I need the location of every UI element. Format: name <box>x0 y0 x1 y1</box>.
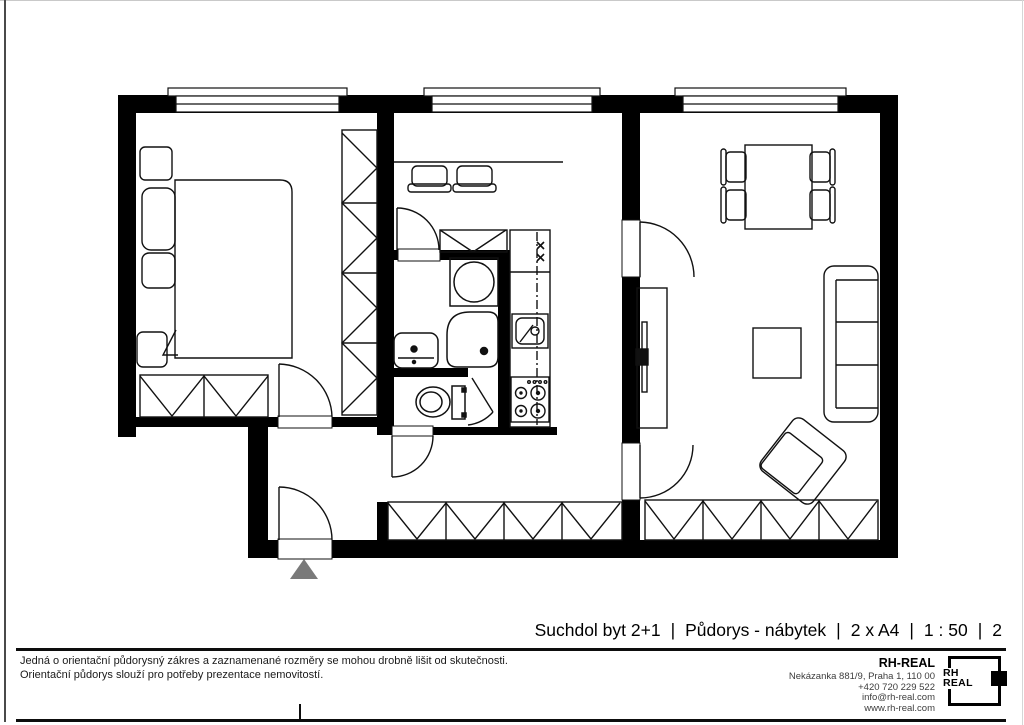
dining-table-symbol <box>745 145 812 229</box>
toilet-symbol <box>416 386 466 419</box>
kitchen-sink-symbol <box>512 314 548 348</box>
walls <box>118 95 898 558</box>
chair-symbol <box>721 187 746 223</box>
company-name: RH-REAL <box>789 656 935 670</box>
chair-symbol <box>721 149 746 185</box>
floorplan-drawing <box>0 0 1024 725</box>
title-paper-size: 2 x A4 <box>851 620 900 640</box>
disclaimer-text: Jedná o orientační půdorysný zákres a za… <box>20 655 508 682</box>
logo-line-2: REAL <box>943 679 973 689</box>
title-separator: | <box>836 620 841 641</box>
kitchen-livingroom-door <box>640 222 694 277</box>
shower-symbol <box>447 312 498 367</box>
company-contact-block: RH-REAL Nekázanka 881/9, Praha 1, 110 00… <box>789 656 935 714</box>
wardrobe-symbol <box>342 130 377 415</box>
title-separator: | <box>909 620 914 641</box>
bedroom-door <box>279 364 332 417</box>
washbasin-symbol <box>394 333 438 368</box>
window-kitchen <box>424 88 600 112</box>
company-logo-mark <box>991 671 1007 686</box>
chair-symbol <box>810 149 835 185</box>
window-bedroom <box>168 88 347 112</box>
company-address: Nekázanka 881/9, Praha 1, 110 00 <box>789 672 935 683</box>
bed-symbol <box>163 180 292 358</box>
nightstand-symbol <box>137 332 167 367</box>
stove-symbol <box>511 377 549 422</box>
title-scale: 1 : 50 <box>924 620 968 640</box>
company-email: info@rh-real.com <box>789 693 935 704</box>
wardrobe-symbol <box>388 502 622 540</box>
pillow-symbol <box>142 188 175 250</box>
title-separator: | <box>978 620 983 641</box>
sofa-symbol <box>824 266 878 422</box>
wardrobe-symbol <box>440 230 507 252</box>
chair-symbol <box>408 166 451 192</box>
hall-livingroom-door <box>640 445 693 498</box>
bedroom-furniture <box>137 130 377 417</box>
wardrobe-symbol <box>140 375 268 417</box>
wardrobe-symbol <box>645 500 878 540</box>
wc-door <box>392 436 433 477</box>
pillow-symbol <box>142 253 175 288</box>
title-sheet-number: 2 <box>992 620 1002 640</box>
window-livingroom <box>675 88 846 112</box>
wc-closet-door <box>468 378 493 425</box>
chair-symbol <box>810 187 835 223</box>
entry-arrow-icon <box>290 559 318 579</box>
bathroom-door <box>397 208 439 250</box>
armchair-symbol <box>757 415 850 508</box>
title-strip: Suchdol byt 2+1|Půdorys - nábytek|2 x A4… <box>535 620 1002 641</box>
tv-symbol <box>636 288 667 428</box>
title-drawing-type: Půdorys - nábytek <box>685 620 826 640</box>
company-logo-text: RH REAL <box>943 668 976 689</box>
company-website: www.rh-real.com <box>789 704 935 715</box>
title-divider-line <box>16 648 1006 651</box>
livingroom-furniture <box>636 145 878 540</box>
disclaimer-line-2: Orientační půdorys slouží pro potřeby pr… <box>20 669 508 683</box>
floorplan-page: Suchdol byt 2+1|Půdorys - nábytek|2 x A4… <box>0 0 1024 725</box>
bottom-border-line <box>16 719 1006 722</box>
washing-machine-symbol <box>450 258 498 306</box>
chair-symbol <box>453 166 496 192</box>
disclaimer-line-1: Jedná o orientační půdorysný zákres a za… <box>20 655 508 669</box>
door-jambs <box>278 220 640 559</box>
coffee-table-symbol <box>753 328 801 378</box>
title-property: Suchdol byt 2+1 <box>535 620 661 640</box>
windows <box>168 88 846 112</box>
entry-door <box>279 487 332 540</box>
title-separator: | <box>671 620 676 641</box>
nightstand-symbol <box>140 147 172 180</box>
